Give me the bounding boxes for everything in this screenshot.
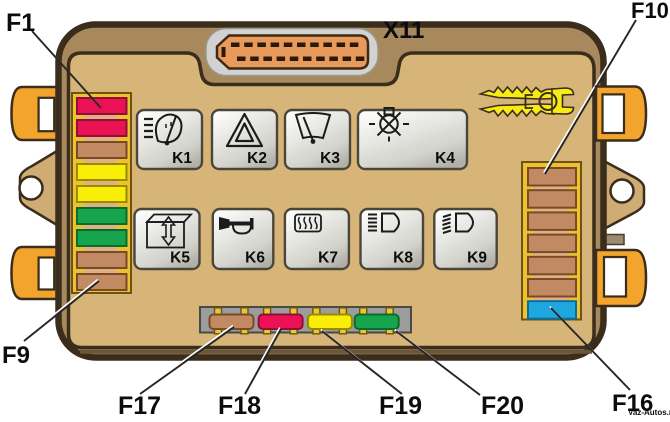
svg-text:K1: K1 — [172, 150, 192, 167]
svg-text:F18: F18 — [218, 392, 261, 417]
svg-text:F9: F9 — [2, 342, 30, 369]
svg-text:Vaz-Autos.ru: Vaz-Autos.ru — [628, 408, 670, 417]
svg-text:K4: K4 — [435, 150, 455, 167]
svg-text:X11: X11 — [383, 17, 424, 44]
svg-text:K7: K7 — [318, 250, 338, 267]
svg-text:F1: F1 — [6, 9, 35, 37]
svg-text:F17: F17 — [118, 392, 161, 417]
svg-text:F19: F19 — [379, 392, 422, 417]
svg-text:K8: K8 — [393, 250, 413, 267]
svg-text:F10: F10 — [631, 0, 669, 23]
svg-text:F20: F20 — [481, 392, 524, 417]
svg-text:K9: K9 — [467, 250, 487, 267]
svg-text:K2: K2 — [247, 150, 267, 167]
svg-text:K5: K5 — [170, 250, 190, 267]
svg-text:K3: K3 — [320, 150, 340, 167]
svg-text:K6: K6 — [245, 250, 265, 267]
